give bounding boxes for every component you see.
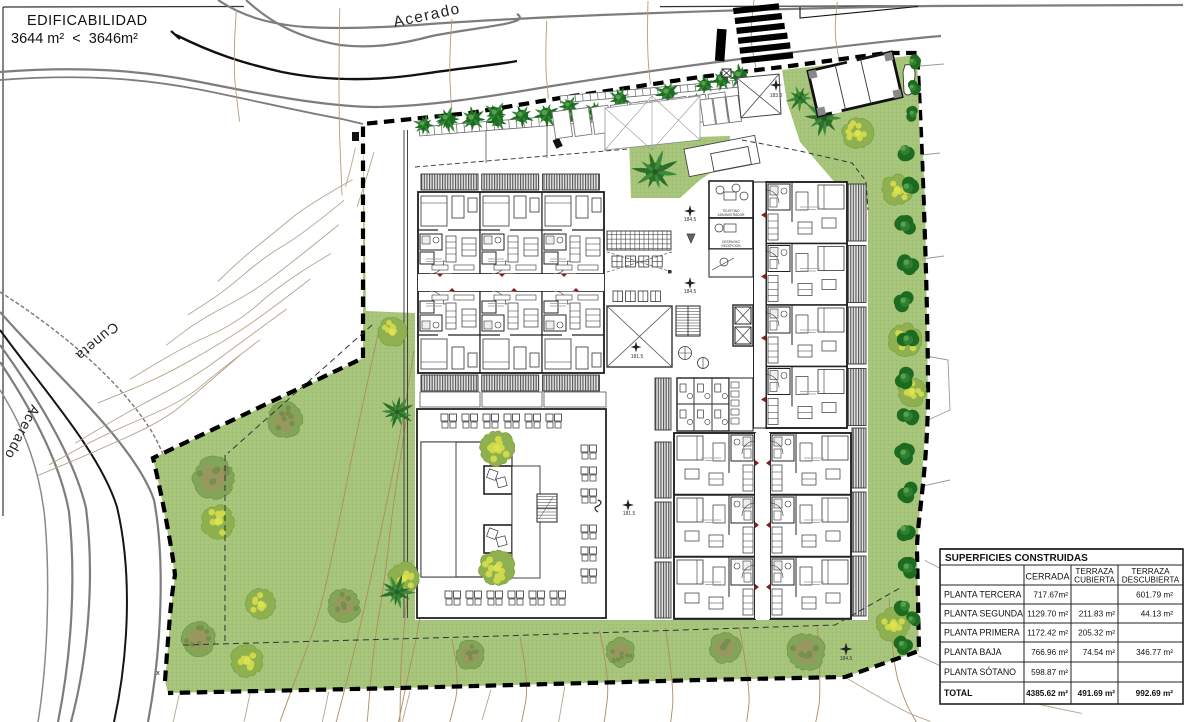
svg-text:PLANTA SEGUNDA: PLANTA SEGUNDA xyxy=(944,609,1023,619)
svg-text:598.87 m²: 598.87 m² xyxy=(1031,668,1068,677)
svg-text:PLANTA SÓTANO: PLANTA SÓTANO xyxy=(944,667,1016,677)
svg-text:3644 m² < 3646m²: 3644 m² < 3646m² xyxy=(11,31,138,47)
svg-text:EDIFICABILIDAD: EDIFICABILIDAD xyxy=(27,13,148,29)
svg-text:181.5: 181.5 xyxy=(631,354,644,360)
svg-text:SUPERFICIES CONSTRUIDAS: SUPERFICIES CONSTRUIDAS xyxy=(945,553,1088,564)
svg-text:x: x xyxy=(156,670,160,677)
svg-text:CERRADA: CERRADA xyxy=(1025,572,1069,582)
svg-text:992.69 m²: 992.69 m² xyxy=(1136,689,1174,698)
svg-text:ADMINISTRADOR: ADMINISTRADOR xyxy=(718,213,745,217)
svg-text:1172.42 m²: 1172.42 m² xyxy=(1027,629,1068,638)
svg-text:183.0: 183.0 xyxy=(770,93,783,99)
svg-text:4385.62 m²: 4385.62 m² xyxy=(1026,689,1068,698)
svg-text:1129.70 m²: 1129.70 m² xyxy=(1027,610,1068,619)
svg-text:601.79 m²: 601.79 m² xyxy=(1136,591,1173,600)
svg-text:346.77 m²: 346.77 m² xyxy=(1136,648,1173,657)
svg-text:184.5: 184.5 xyxy=(684,289,697,295)
svg-text:PLANTA PRIMERA: PLANTA PRIMERA xyxy=(944,628,1020,638)
svg-text:205.32 m²: 205.32 m² xyxy=(1078,629,1115,638)
svg-text:184.5: 184.5 xyxy=(840,656,853,662)
svg-text:RECEPCION: RECEPCION xyxy=(722,244,742,248)
svg-text:Acerado: Acerado xyxy=(1,402,43,462)
svg-text:CUBIERTA: CUBIERTA xyxy=(1074,576,1115,585)
svg-text:74.54 m²: 74.54 m² xyxy=(1083,648,1116,657)
svg-text:PLANTA BAJA: PLANTA BAJA xyxy=(944,647,1002,657)
svg-text:Cuneta: Cuneta xyxy=(72,319,121,364)
svg-text:491.69 m²: 491.69 m² xyxy=(1078,689,1116,698)
svg-text:766.96 m²: 766.96 m² xyxy=(1031,648,1068,657)
svg-text:44.13 m²: 44.13 m² xyxy=(1141,610,1174,619)
svg-text:DESCUBIERTA: DESCUBIERTA xyxy=(1122,576,1180,585)
svg-text:211.83 m²: 211.83 m² xyxy=(1079,610,1116,619)
svg-text:717.67m²: 717.67m² xyxy=(1033,591,1068,600)
svg-text:PLANTA TERCERA: PLANTA TERCERA xyxy=(944,590,1022,600)
svg-text:TOTAL: TOTAL xyxy=(944,688,973,698)
svg-text:181.5: 181.5 xyxy=(623,511,636,517)
svg-text:184.5: 184.5 xyxy=(684,217,697,223)
